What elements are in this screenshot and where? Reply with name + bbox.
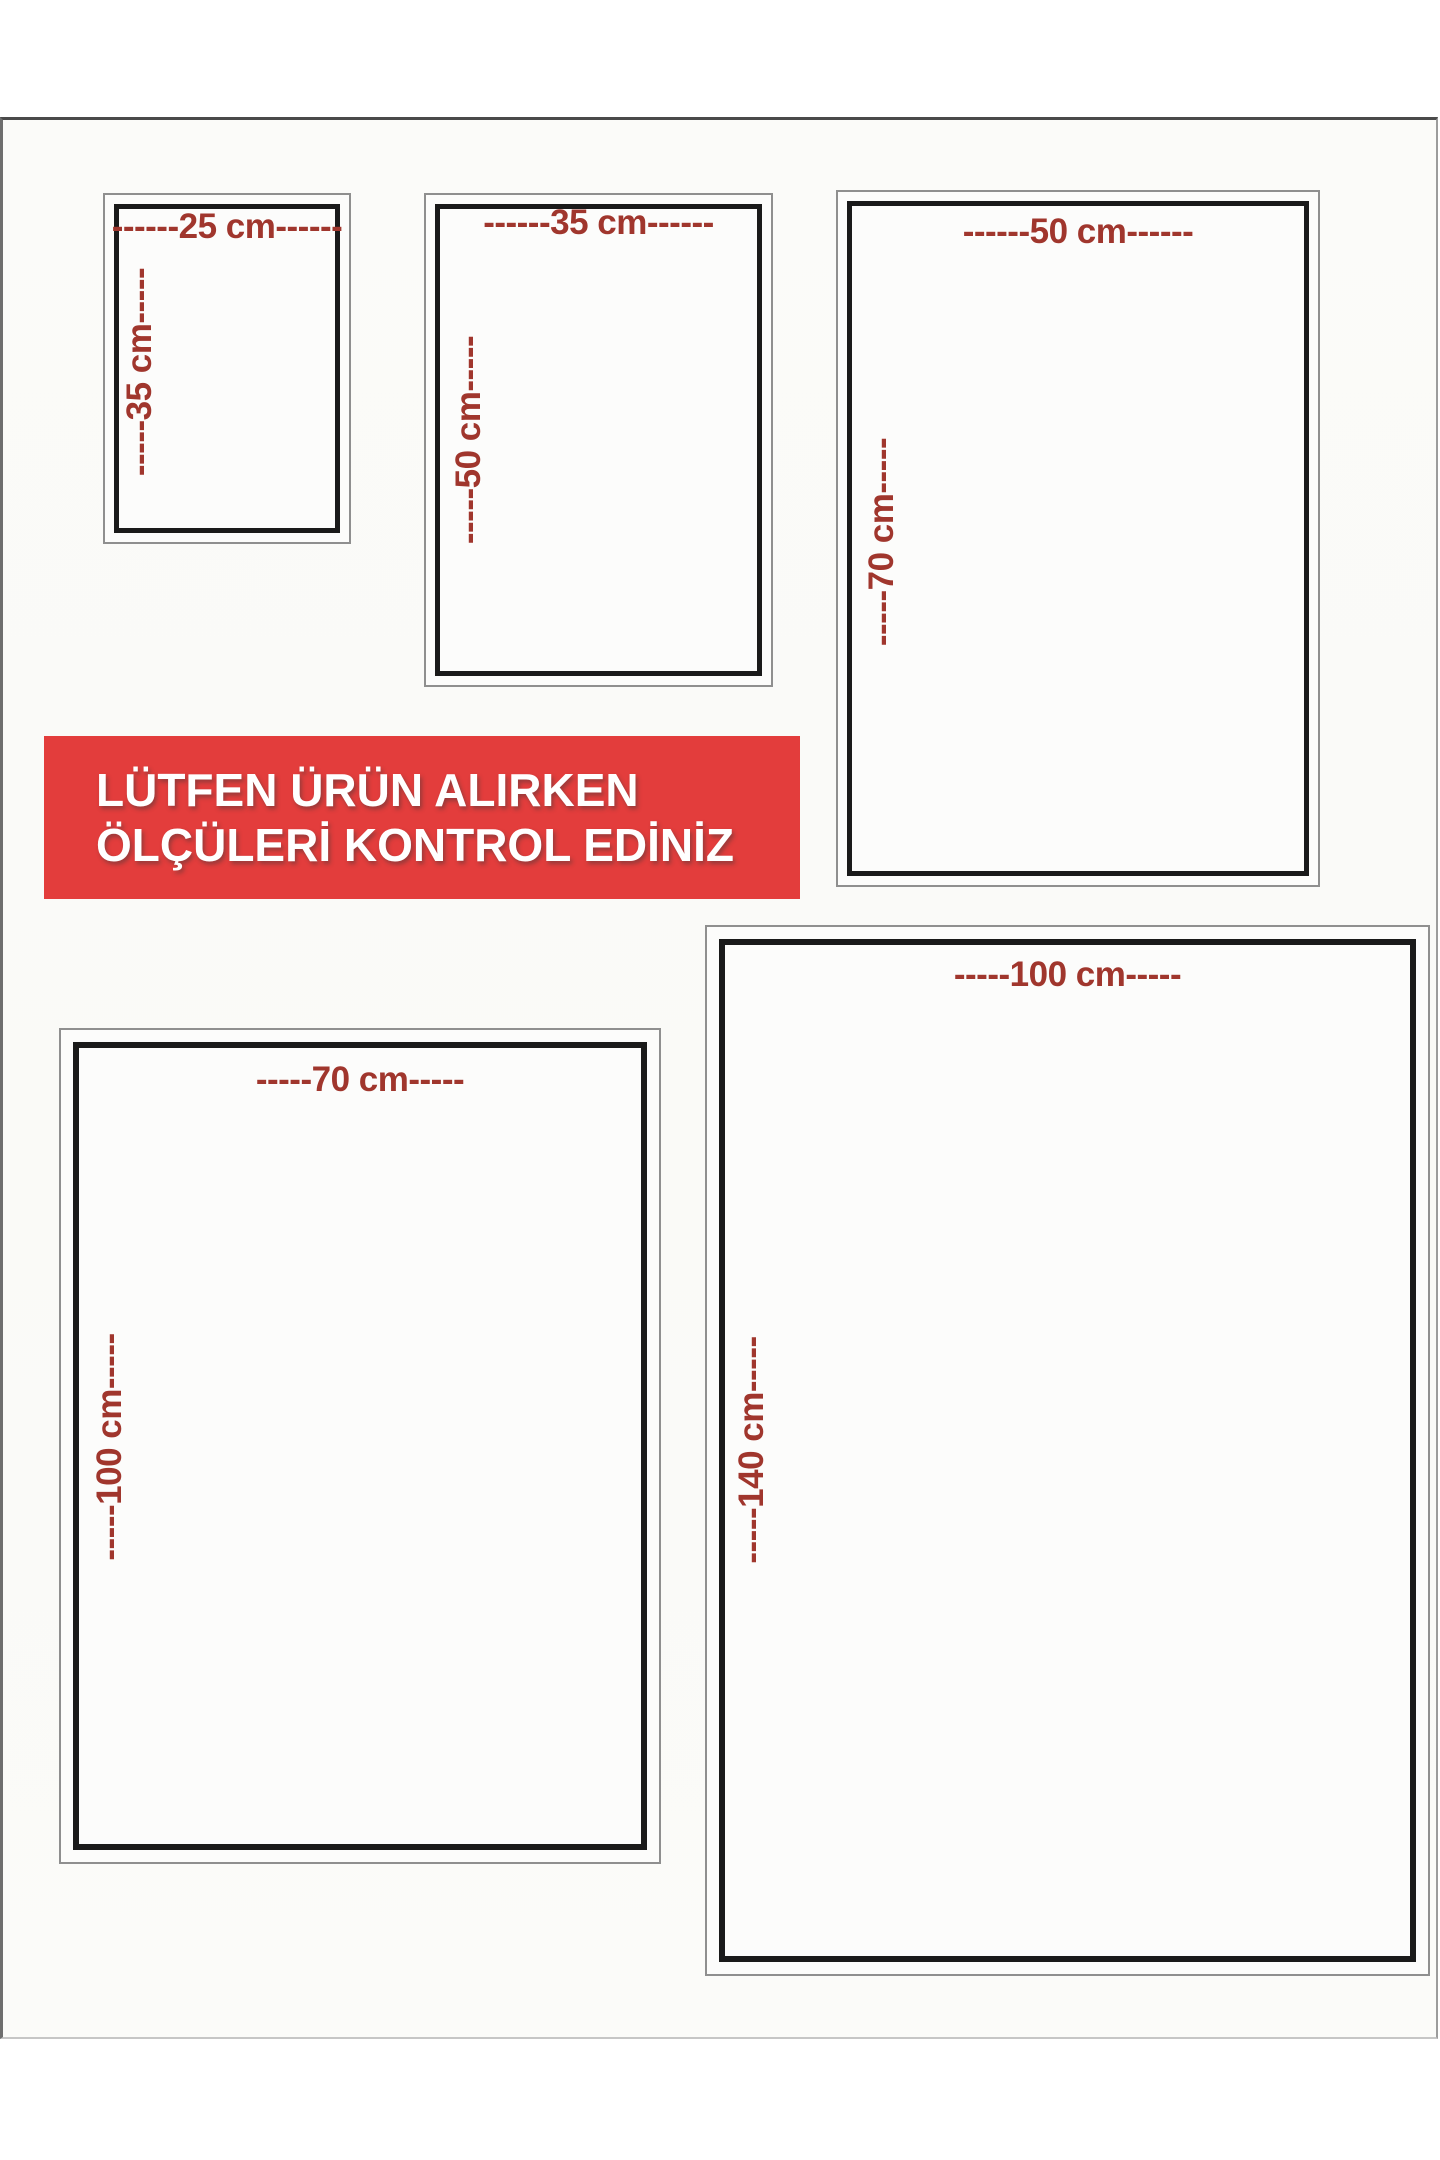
frame-inner-border — [719, 939, 1416, 1962]
size-guide-image: ------25 cm------ -----35 cm----- ------… — [0, 0, 1440, 2160]
size-box-50x70: ------50 cm------ -----70 cm----- — [836, 190, 1320, 887]
frame-inner-border — [847, 201, 1309, 876]
width-label: -----70 cm----- — [61, 1060, 659, 1100]
size-box-70x100: -----70 cm----- -----100 cm----- — [59, 1028, 661, 1864]
size-box-100x140: -----100 cm----- -----140 cm----- — [705, 925, 1430, 1976]
height-label: -----100 cm----- — [90, 1333, 130, 1560]
warning-banner-line-1: LÜTFEN ÜRÜN ALIRKEN — [96, 766, 639, 814]
height-label: -----35 cm----- — [120, 268, 160, 476]
height-label: -----50 cm----- — [449, 336, 489, 544]
width-label: -----100 cm----- — [707, 955, 1428, 995]
frame-inner-border — [73, 1042, 647, 1850]
width-label: ------25 cm------ — [105, 207, 349, 247]
width-label: ------50 cm------ — [838, 212, 1318, 252]
width-label: ------35 cm------ — [426, 203, 771, 243]
size-box-25x35: ------25 cm------ -----35 cm----- — [103, 193, 351, 544]
warning-banner-line-2: ÖLÇÜLERİ KONTROL EDİNİZ — [96, 821, 734, 869]
warning-banner: LÜTFEN ÜRÜN ALIRKEN ÖLÇÜLERİ KONTROL EDİ… — [44, 736, 800, 899]
height-label: -----70 cm----- — [862, 438, 902, 646]
height-label: -----140 cm----- — [732, 1336, 772, 1563]
size-box-35x50: ------35 cm------ -----50 cm----- — [424, 193, 773, 687]
